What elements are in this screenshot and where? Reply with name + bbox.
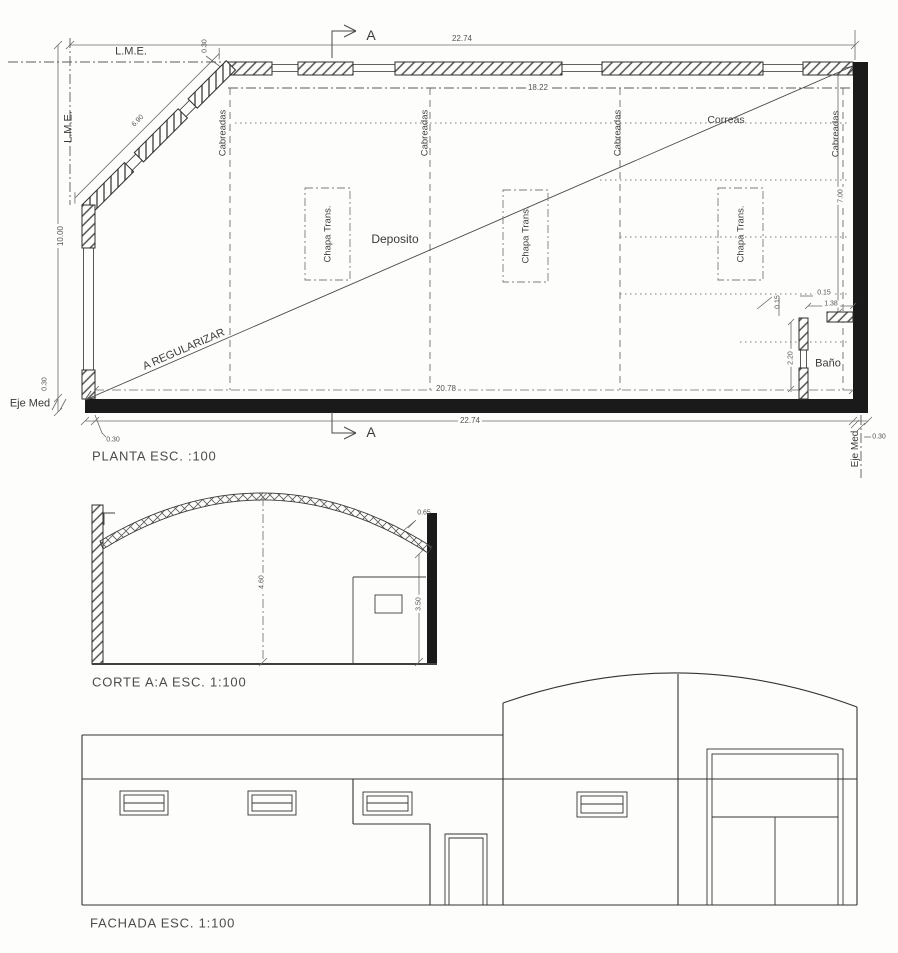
label-chapa-trans-1: Chapa Trans. — [323, 205, 333, 262]
section-title: CORTE A:A ESC. 1:100 — [92, 676, 247, 689]
roof-truss-arc — [100, 493, 432, 553]
facade-linework — [82, 673, 857, 905]
dim-bano-depth: 2.20 — [788, 349, 795, 367]
dim-left-height: 10.00 — [57, 224, 65, 248]
facade-window-1 — [120, 791, 168, 815]
section-marker-a-bottom: A — [366, 425, 375, 439]
label-lme-vertical: L.M.E. — [64, 111, 75, 143]
dim-truss-depth: 0.65 — [417, 510, 431, 517]
dim-total-width-top: 22.74 — [450, 35, 474, 43]
dim-wall-height: 3.50 — [416, 595, 423, 613]
section-dimension-lines — [259, 493, 423, 666]
dim-wall-030-bottom-right: 0.30 — [872, 434, 886, 441]
plan-dimension-lines — [52, 30, 872, 437]
dim-inner-width: 18.22 — [526, 84, 550, 92]
dim-wall-030-top: 0.30 — [202, 39, 209, 53]
blueprint-page: 22.74 A L.M.E. 0.30 L.M.E. 6.90 Cabreada… — [0, 0, 898, 953]
facade-low-block — [82, 735, 857, 905]
left-wall — [82, 205, 95, 399]
section-marker-a-top: A — [366, 28, 375, 42]
dim-wall-030-left: 0.30 — [42, 377, 49, 391]
dim-total-width-bottom: 22.74 — [458, 417, 482, 425]
label-cabreadas-1: Cabreadas — [218, 110, 228, 156]
facade-door — [445, 834, 487, 905]
dim-bano-width: 1.38 — [822, 301, 840, 308]
drawing-canvas — [0, 0, 898, 953]
facade-window-4 — [577, 792, 627, 817]
facade-gate — [707, 749, 843, 905]
eave-detail — [104, 513, 115, 525]
facade-tall-block — [503, 673, 857, 905]
label-eje-med-right: Eje Med — [851, 431, 861, 468]
dim-bano-wall-h: 0.15 — [815, 290, 833, 297]
facade-window-3 — [363, 792, 412, 815]
label-cabreadas-4: Cabreadas — [831, 111, 841, 157]
top-wall — [228, 62, 853, 75]
section-left-wall — [92, 505, 103, 664]
section-marker-lines — [332, 25, 356, 439]
bano-walls — [799, 312, 853, 399]
facade-windows — [120, 791, 627, 817]
bottom-wall — [85, 399, 868, 413]
facade-title: FACHADA ESC. 1:100 — [90, 917, 235, 930]
label-cabreadas-3: Cabreadas — [613, 110, 623, 156]
label-correas: Correas — [707, 115, 744, 126]
diagonal-wall — [69, 48, 238, 217]
right-wall — [853, 62, 868, 413]
dim-clear-height: 4.60 — [259, 573, 266, 591]
section-right-wall — [427, 513, 437, 664]
facade-window-2 — [248, 791, 296, 815]
label-bano: Baño — [815, 359, 841, 370]
label-chapa-trans-3: Chapa Trans. — [736, 205, 746, 262]
label-deposito: Deposito — [371, 233, 418, 245]
dim-inner-bottom: 20.78 — [434, 385, 458, 393]
section-partition — [353, 577, 426, 663]
dim-right-height: 7.00 — [838, 187, 845, 205]
label-lme-horizontal: L.M.E. — [115, 47, 147, 58]
label-chapa-trans-2: Chapa Trans. — [521, 206, 531, 263]
plan-title: PLANTA ESC. :100 — [92, 450, 217, 463]
label-cabreadas-2: Cabreadas — [420, 110, 430, 156]
dim-bano-wall-v: 0.15 — [775, 295, 782, 309]
dim-wall-030-bottom-left: 0.30 — [106, 437, 120, 444]
label-eje-med-left: Eje Med — [10, 399, 50, 410]
